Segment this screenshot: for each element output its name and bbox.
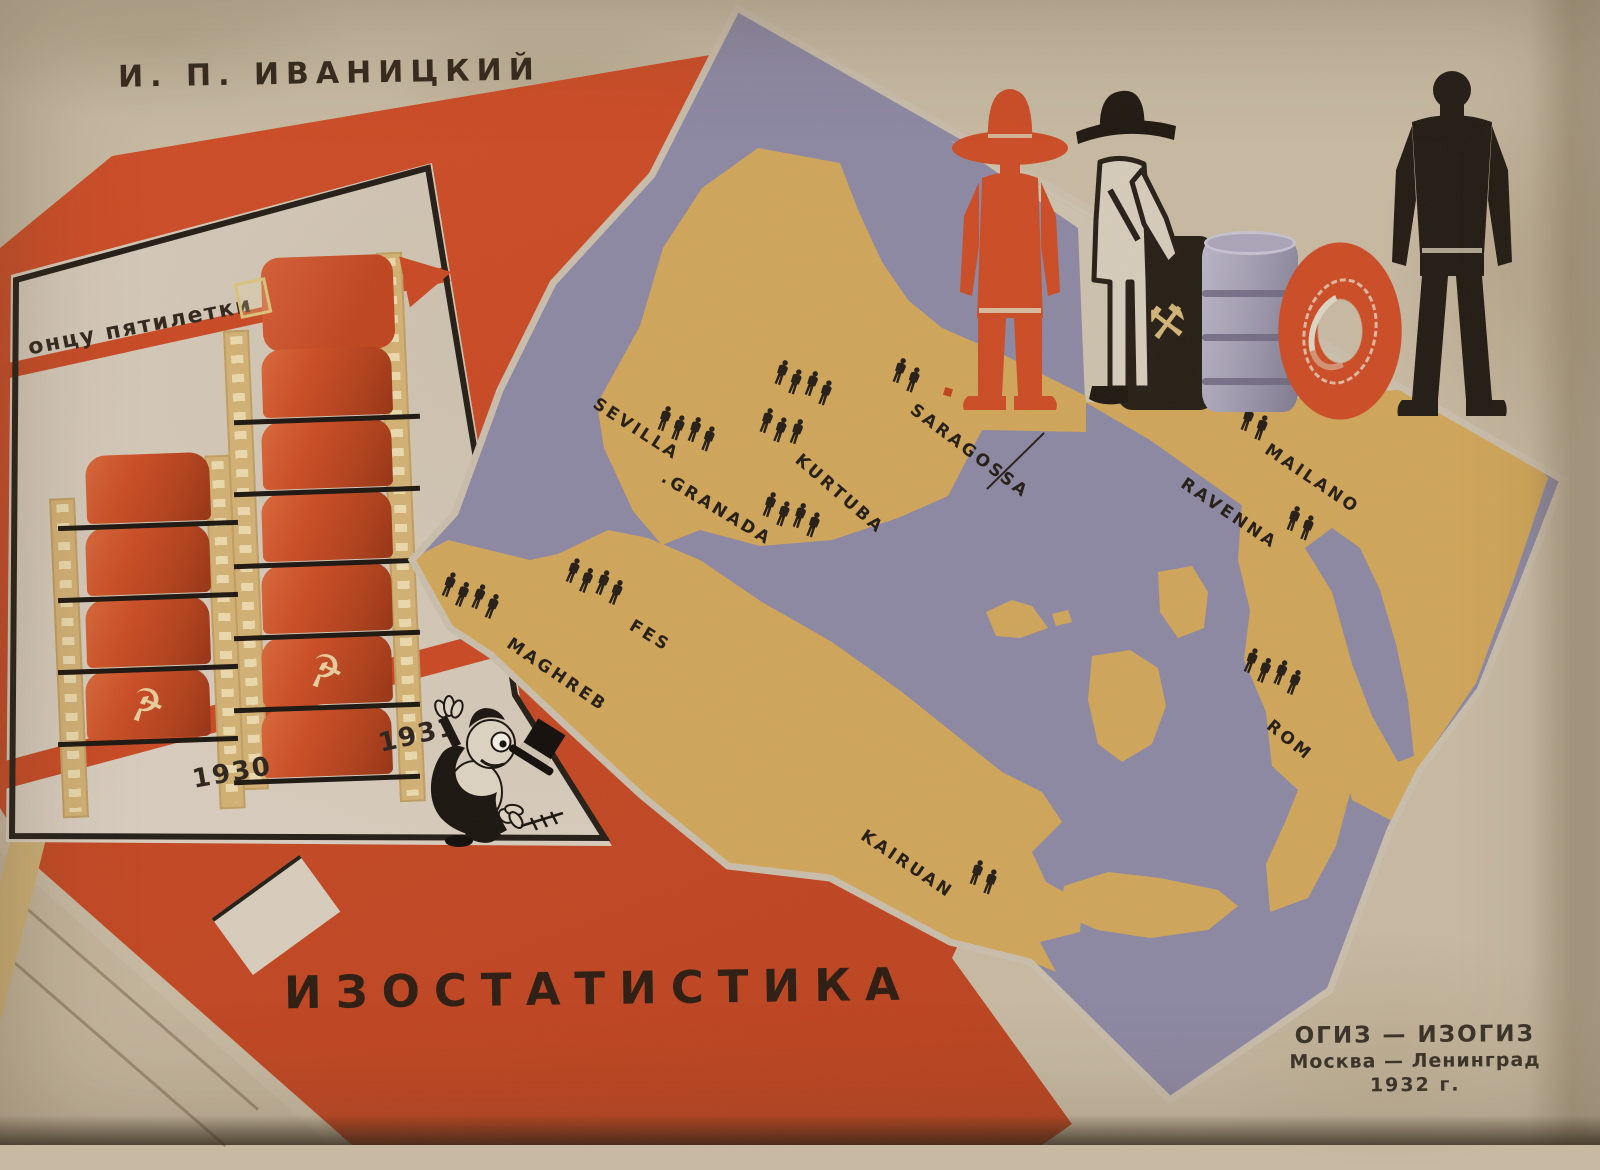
map-label-saragossa: SARAGOSSA <box>906 400 1033 503</box>
map-label-ravenna: RAVENNA <box>1177 474 1281 553</box>
book-cover: { "canvas": {"width": 1600, "height": 11… <box>0 0 1600 1145</box>
crowd-kairuan <box>966 858 1005 893</box>
black-worker-figure <box>1386 70 1518 418</box>
map-label-rom: ROM <box>1262 716 1316 765</box>
cover-right-seam <box>1528 0 1600 1145</box>
map-label-fes: FES <box>626 616 674 656</box>
crowd-saragossa <box>889 356 928 391</box>
crowd-ravenna <box>1283 504 1322 539</box>
barrel-rim <box>1204 231 1296 255</box>
map-label-mailano: MAILANO <box>1261 440 1363 518</box>
tire <box>1278 242 1402 420</box>
author-name: И. П. ИВАНИЦКИЙ <box>118 52 541 94</box>
crowd-kurtuba <box>771 358 840 404</box>
crowd-maghreb <box>438 570 507 618</box>
crowd-kurtuba <box>756 406 810 447</box>
book-title: ИЗОСТАТИСТИКА <box>284 958 914 1020</box>
cover-bottom-shadow <box>0 1115 1600 1145</box>
map-label-kairuan: KAIRUAN <box>857 826 957 903</box>
red-peasant-figure <box>948 66 1072 414</box>
crowd-fes <box>562 556 631 604</box>
white-miner-figure <box>1070 70 1182 410</box>
map-label-maghreb: MAGHREB <box>503 634 611 716</box>
map-label-granada: .GRANADA <box>658 468 776 550</box>
crowd-rom <box>1240 646 1309 694</box>
